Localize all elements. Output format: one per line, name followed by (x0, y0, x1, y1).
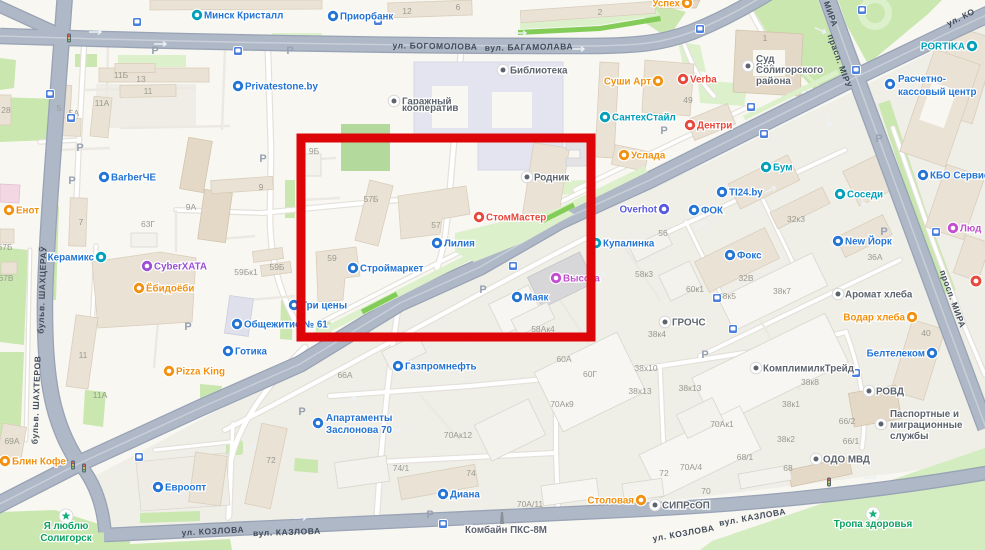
svg-text:миграционные: миграционные (890, 420, 963, 431)
svg-text:1: 1 (763, 33, 768, 43)
svg-text:СантехСтайл: СантехСтайл (612, 113, 676, 124)
svg-text:49: 49 (683, 95, 693, 105)
svg-text:района: района (756, 76, 791, 87)
svg-text:Ёбидоёби: Ёбидоёби (146, 284, 194, 295)
svg-text:38к8: 38к8 (801, 377, 819, 387)
svg-text:2: 2 (598, 7, 603, 17)
svg-text:Privatestone.by: Privatestone.by (245, 82, 319, 93)
svg-text:72: 72 (659, 468, 669, 478)
svg-text:69А: 69А (4, 436, 19, 446)
svg-text:Суд: Суд (756, 54, 775, 65)
svg-text:P: P (298, 406, 305, 418)
svg-text:5: 5 (57, 103, 62, 113)
svg-text:Успех: Успех (652, 0, 680, 10)
svg-text:66/2: 66/2 (839, 416, 856, 426)
svg-text:РОВД: РОВД (876, 387, 904, 398)
svg-text:Verba: Verba (690, 75, 717, 86)
svg-text:КБО Сервис: КБО Сервис (930, 171, 985, 182)
svg-text:СИПРсОП: СИПРсОП (662, 501, 710, 512)
svg-text:New Йорк: New Йорк (845, 236, 892, 248)
svg-text:Керамикс: Керамикс (48, 253, 95, 264)
svg-text:74: 74 (466, 468, 476, 478)
svg-text:38х10: 38х10 (634, 363, 657, 373)
svg-text:P: P (68, 175, 75, 187)
svg-text:9А: 9А (186, 202, 197, 212)
svg-text:P: P (259, 153, 266, 165)
svg-text:Комбайн ПКС-8М: Комбайн ПКС-8М (465, 525, 547, 536)
svg-text:КомплимилкТрейд: КомплимилкТрейд (763, 364, 855, 375)
svg-text:Overhot: Overhot (619, 205, 657, 216)
svg-text:74/1: 74/1 (393, 463, 410, 473)
svg-text:28: 28 (1, 105, 11, 115)
svg-text:Строймаркет: Строймаркет (360, 264, 424, 275)
svg-text:38к1: 38к1 (782, 399, 800, 409)
svg-text:Солигорск: Солигорск (40, 533, 91, 544)
svg-text:Готика: Готика (235, 347, 268, 358)
svg-text:11Б: 11Б (114, 70, 129, 80)
svg-text:38к4: 38к4 (648, 329, 666, 339)
svg-text:57Б: 57Б (363, 194, 378, 204)
svg-text:ГРОЧС: ГРОЧС (672, 318, 706, 329)
svg-text:Три цены: Три цены (301, 301, 347, 312)
svg-text:60Г: 60Г (583, 369, 597, 379)
svg-text:Суши Арт: Суши Арт (604, 77, 651, 88)
svg-text:Диана: Диана (450, 490, 480, 501)
svg-text:70А/11: 70А/11 (517, 499, 544, 509)
svg-text:кассовый центр: кассовый центр (898, 87, 977, 98)
svg-text:ул. БОГОМОЛОВА: ул. БОГОМОЛОВА (392, 40, 477, 51)
svg-text:12: 12 (402, 6, 412, 16)
svg-text:Евроопт: Евроопт (165, 483, 206, 494)
svg-text:Заслонова 70: Заслонова 70 (326, 425, 393, 436)
svg-text:36А: 36А (867, 252, 882, 262)
svg-text:Общежитие № 61: Общежитие № 61 (244, 320, 328, 331)
svg-text:60к1: 60к1 (686, 284, 704, 294)
svg-text:Приорбанк: Приорбанк (340, 12, 393, 23)
svg-text:P: P (701, 349, 708, 361)
svg-text:70Ак1: 70Ак1 (710, 419, 734, 429)
svg-text:38х13: 38х13 (628, 386, 651, 396)
svg-text:Паспортные и: Паспортные и (890, 409, 959, 420)
svg-text:13: 13 (136, 74, 146, 84)
svg-text:70: 70 (701, 486, 711, 496)
svg-text:ОДО МВД: ОДО МВД (823, 455, 870, 466)
svg-text:38к13: 38к13 (679, 383, 702, 393)
svg-text:Газпромнефть: Газпромнефть (405, 362, 477, 373)
svg-text:9Б: 9Б (309, 146, 320, 156)
svg-text:Аромат хлеба: Аромат хлеба (845, 290, 913, 301)
svg-text:59Б: 59Б (269, 262, 284, 272)
svg-text:BarberЧЕ: BarberЧЕ (111, 173, 156, 184)
svg-text:66/1: 66/1 (843, 436, 860, 446)
svg-text:63Г: 63Г (141, 219, 155, 229)
svg-text:11А: 11А (93, 390, 108, 400)
svg-text:68: 68 (783, 463, 793, 473)
svg-text:P: P (184, 321, 191, 333)
svg-text:Лилия: Лилия (444, 239, 475, 250)
svg-text:Я люблю: Я люблю (44, 521, 89, 532)
svg-text:Фокс: Фокс (737, 251, 762, 262)
svg-text:Солигорского: Солигорского (756, 65, 823, 76)
svg-text:ТI24.by: ТI24.by (729, 188, 763, 199)
svg-text:P: P (76, 142, 83, 154)
svg-text:Блин Кофе: Блин Кофе (12, 457, 66, 468)
svg-text:ФОК: ФОК (701, 206, 723, 217)
svg-text:Купалинка: Купалинка (603, 239, 655, 250)
svg-text:P: P (426, 509, 433, 521)
svg-text:66А: 66А (337, 370, 352, 380)
svg-text:72: 72 (266, 455, 276, 465)
svg-text:Соседи: Соседи (847, 190, 883, 201)
svg-text:70А/4: 70А/4 (680, 462, 702, 472)
svg-text:P: P (660, 125, 667, 137)
svg-text:70Ак12: 70Ак12 (444, 430, 473, 440)
svg-text:38к7: 38к7 (773, 286, 791, 296)
svg-text:6: 6 (456, 2, 461, 12)
svg-text:67Б: 67Б (0, 242, 13, 252)
svg-text:11А: 11А (95, 98, 110, 108)
svg-text:67В: 67В (0, 273, 14, 283)
svg-text:11: 11 (79, 350, 88, 360)
svg-text:60А: 60А (556, 354, 571, 364)
svg-text:P: P (151, 45, 158, 57)
svg-text:Расчетно-: Расчетно- (898, 74, 946, 85)
svg-text:38к2: 38к2 (777, 434, 795, 444)
svg-text:P: P (875, 133, 882, 145)
svg-text:58к3: 58к3 (635, 269, 653, 279)
svg-text:P: P (286, 45, 293, 57)
svg-text:9: 9 (259, 182, 264, 192)
svg-text:Водар хлеба: Водар хлеба (843, 313, 905, 324)
svg-text:32В: 32В (738, 273, 753, 283)
svg-text:40: 40 (921, 328, 931, 338)
svg-text:70Ак9: 70Ак9 (550, 399, 574, 409)
svg-text:Маяк: Маяк (524, 293, 548, 304)
svg-text:Апартаменты: Апартаменты (326, 413, 392, 424)
svg-text:Бум: Бум (773, 163, 792, 174)
svg-text:СтомМастер: СтомМастер (486, 213, 546, 224)
svg-text:Библиотека: Библиотека (510, 66, 568, 77)
svg-text:Тропа здоровья: Тропа здоровья (834, 519, 913, 530)
svg-text:57: 57 (431, 220, 441, 230)
svg-text:11: 11 (144, 86, 153, 96)
svg-text:P: P (479, 284, 486, 296)
svg-text:кооператив: кооператив (402, 103, 458, 114)
svg-text:Столовая: Столовая (587, 496, 634, 507)
svg-text:CyberXATA: CyberXATA (154, 262, 207, 273)
svg-text:56: 56 (658, 228, 668, 238)
svg-text:59: 59 (327, 253, 337, 263)
svg-text:7: 7 (79, 217, 84, 227)
svg-text:Pizza King: Pizza King (176, 367, 225, 378)
svg-text:68/1: 68/1 (737, 452, 754, 462)
svg-text:Дентри: Дентри (697, 121, 732, 132)
svg-text:Услада: Услада (631, 151, 666, 162)
svg-text:PORTIKA: PORTIKA (921, 42, 965, 53)
svg-text:59Бк1: 59Бк1 (234, 267, 258, 277)
svg-text:службы: службы (890, 431, 928, 442)
svg-text:Родник: Родник (534, 173, 569, 184)
svg-text:Минск Кристалл: Минск Кристалл (204, 11, 283, 22)
svg-text:вул. БАГАМОЛАВА: вул. БАГАМОЛАВА (485, 41, 574, 53)
svg-text:Белтелеком: Белтелеком (867, 349, 925, 360)
svg-text:32к3: 32к3 (787, 214, 805, 224)
svg-text:Люд: Люд (960, 224, 982, 235)
svg-text:Енот: Енот (16, 206, 39, 217)
